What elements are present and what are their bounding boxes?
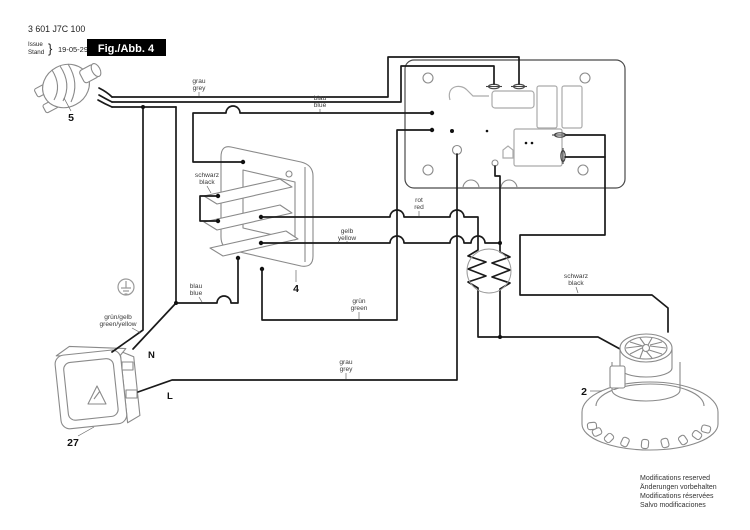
label-grey-lower: grau grey xyxy=(339,359,353,379)
svg-text:black: black xyxy=(568,280,584,287)
switch-number: 4 xyxy=(293,283,299,295)
socket-leader xyxy=(78,427,94,436)
pcb-solder-dot xyxy=(450,129,454,133)
label-red: rot red xyxy=(414,197,424,216)
issue-label: Issue xyxy=(28,41,43,48)
mains-plug: 5 xyxy=(30,50,112,124)
title-block: 3 601 J7C 100 Issue Stand } 19-05-29 Fig… xyxy=(28,24,166,56)
footer-line-3: Modifications réservées xyxy=(640,493,714,500)
label-green-yellow: grün/gelb green/yellow xyxy=(99,314,141,333)
svg-text:blau: blau xyxy=(314,95,327,102)
svg-text:black: black xyxy=(199,179,215,186)
terminal-label-line: L xyxy=(167,391,173,402)
pcb-solder-dot xyxy=(531,142,534,145)
switch-terminal-dot xyxy=(236,256,240,260)
svg-text:grey: grey xyxy=(340,366,354,373)
svg-text:grün/gelb: grün/gelb xyxy=(104,314,132,321)
figure-label: Fig./Abb. 4 xyxy=(98,43,155,55)
label-yellow: gelb yellow xyxy=(338,228,357,242)
rocker-switch: 4 xyxy=(204,147,313,295)
switch-terminal-dot xyxy=(216,219,220,223)
earth-symbol-glyph xyxy=(121,281,131,294)
vacuum-motor: 2 xyxy=(581,334,718,450)
pcb-outline xyxy=(405,60,625,188)
pcb-module xyxy=(405,60,625,188)
switch-terminal-dot xyxy=(259,215,263,219)
svg-text:grau: grau xyxy=(339,359,353,366)
wiring-diagram-page: 3 601 J7C 100 Issue Stand } 19-05-29 Fig… xyxy=(0,0,750,530)
socket-number: 27 xyxy=(67,437,79,449)
wire-neutral-to-socket xyxy=(133,303,176,349)
switch-terminal-dot xyxy=(216,194,220,198)
issue-stand-brace: } xyxy=(48,41,53,56)
svg-text:green: green xyxy=(351,305,368,312)
pcb-entry-dot xyxy=(430,111,434,115)
wiring-diagram-canvas: 3 601 J7C 100 Issue Stand } 19-05-29 Fig… xyxy=(0,0,750,530)
accessory-socket: 27 xyxy=(53,340,140,449)
svg-text:blue: blue xyxy=(190,290,203,297)
svg-text:red: red xyxy=(414,204,424,211)
svg-text:gelb: gelb xyxy=(341,228,354,235)
socket-terminal xyxy=(126,390,137,398)
switch-terminal-dot xyxy=(259,241,263,245)
motor-connector-block xyxy=(610,366,625,388)
pcb-solder-dot xyxy=(525,142,528,145)
svg-text:grey: grey xyxy=(193,85,207,92)
label-black-switch: schwarz black xyxy=(195,172,219,193)
junction-dot xyxy=(174,301,178,305)
motor-number: 2 xyxy=(581,386,587,398)
label-blue-lower: blau blue xyxy=(190,283,203,302)
svg-text:rot: rot xyxy=(415,197,423,204)
svg-text:grün: grün xyxy=(352,298,366,305)
junction-dot xyxy=(498,241,502,245)
pcb-solder-dot xyxy=(486,130,489,133)
plug-number: 5 xyxy=(68,112,74,124)
footer-line-2: Änderungen vorbehalten xyxy=(640,483,717,491)
svg-text:green/yellow: green/yellow xyxy=(99,321,136,328)
pcb-entry-dot xyxy=(430,128,434,132)
svg-text:blue: blue xyxy=(314,102,327,109)
issue-date: 19-05-29 xyxy=(58,45,88,54)
label-black-motor: schwarz black xyxy=(564,273,588,293)
footer-line-1: Modifications reserved xyxy=(640,475,710,482)
svg-text:schwarz: schwarz xyxy=(564,273,588,280)
svg-text:schwarz: schwarz xyxy=(195,172,219,179)
footer-line-4: Salvo modificaciones xyxy=(640,502,706,509)
wire-suppressor-right xyxy=(492,166,510,337)
label-green: grün green xyxy=(351,298,368,319)
terminal-label-neutral: N xyxy=(148,350,155,361)
svg-text:blau: blau xyxy=(190,283,203,290)
switch-terminal-dot xyxy=(260,267,264,271)
label-grey-top: grau grey xyxy=(192,78,206,96)
part-number: 3 601 J7C 100 xyxy=(28,24,85,34)
switch-terminal-dot xyxy=(241,160,245,164)
junction-dot xyxy=(498,335,502,339)
junction-dot xyxy=(141,105,145,109)
stand-label: Stand xyxy=(28,49,45,56)
earth-symbol xyxy=(118,279,134,295)
footer-note: Modifications reserved Änderungen vorbeh… xyxy=(640,475,717,509)
socket-terminal xyxy=(122,362,133,370)
svg-text:yellow: yellow xyxy=(338,235,357,242)
label-blue-top: blau blue xyxy=(314,95,327,112)
svg-text:grau: grau xyxy=(192,78,206,85)
